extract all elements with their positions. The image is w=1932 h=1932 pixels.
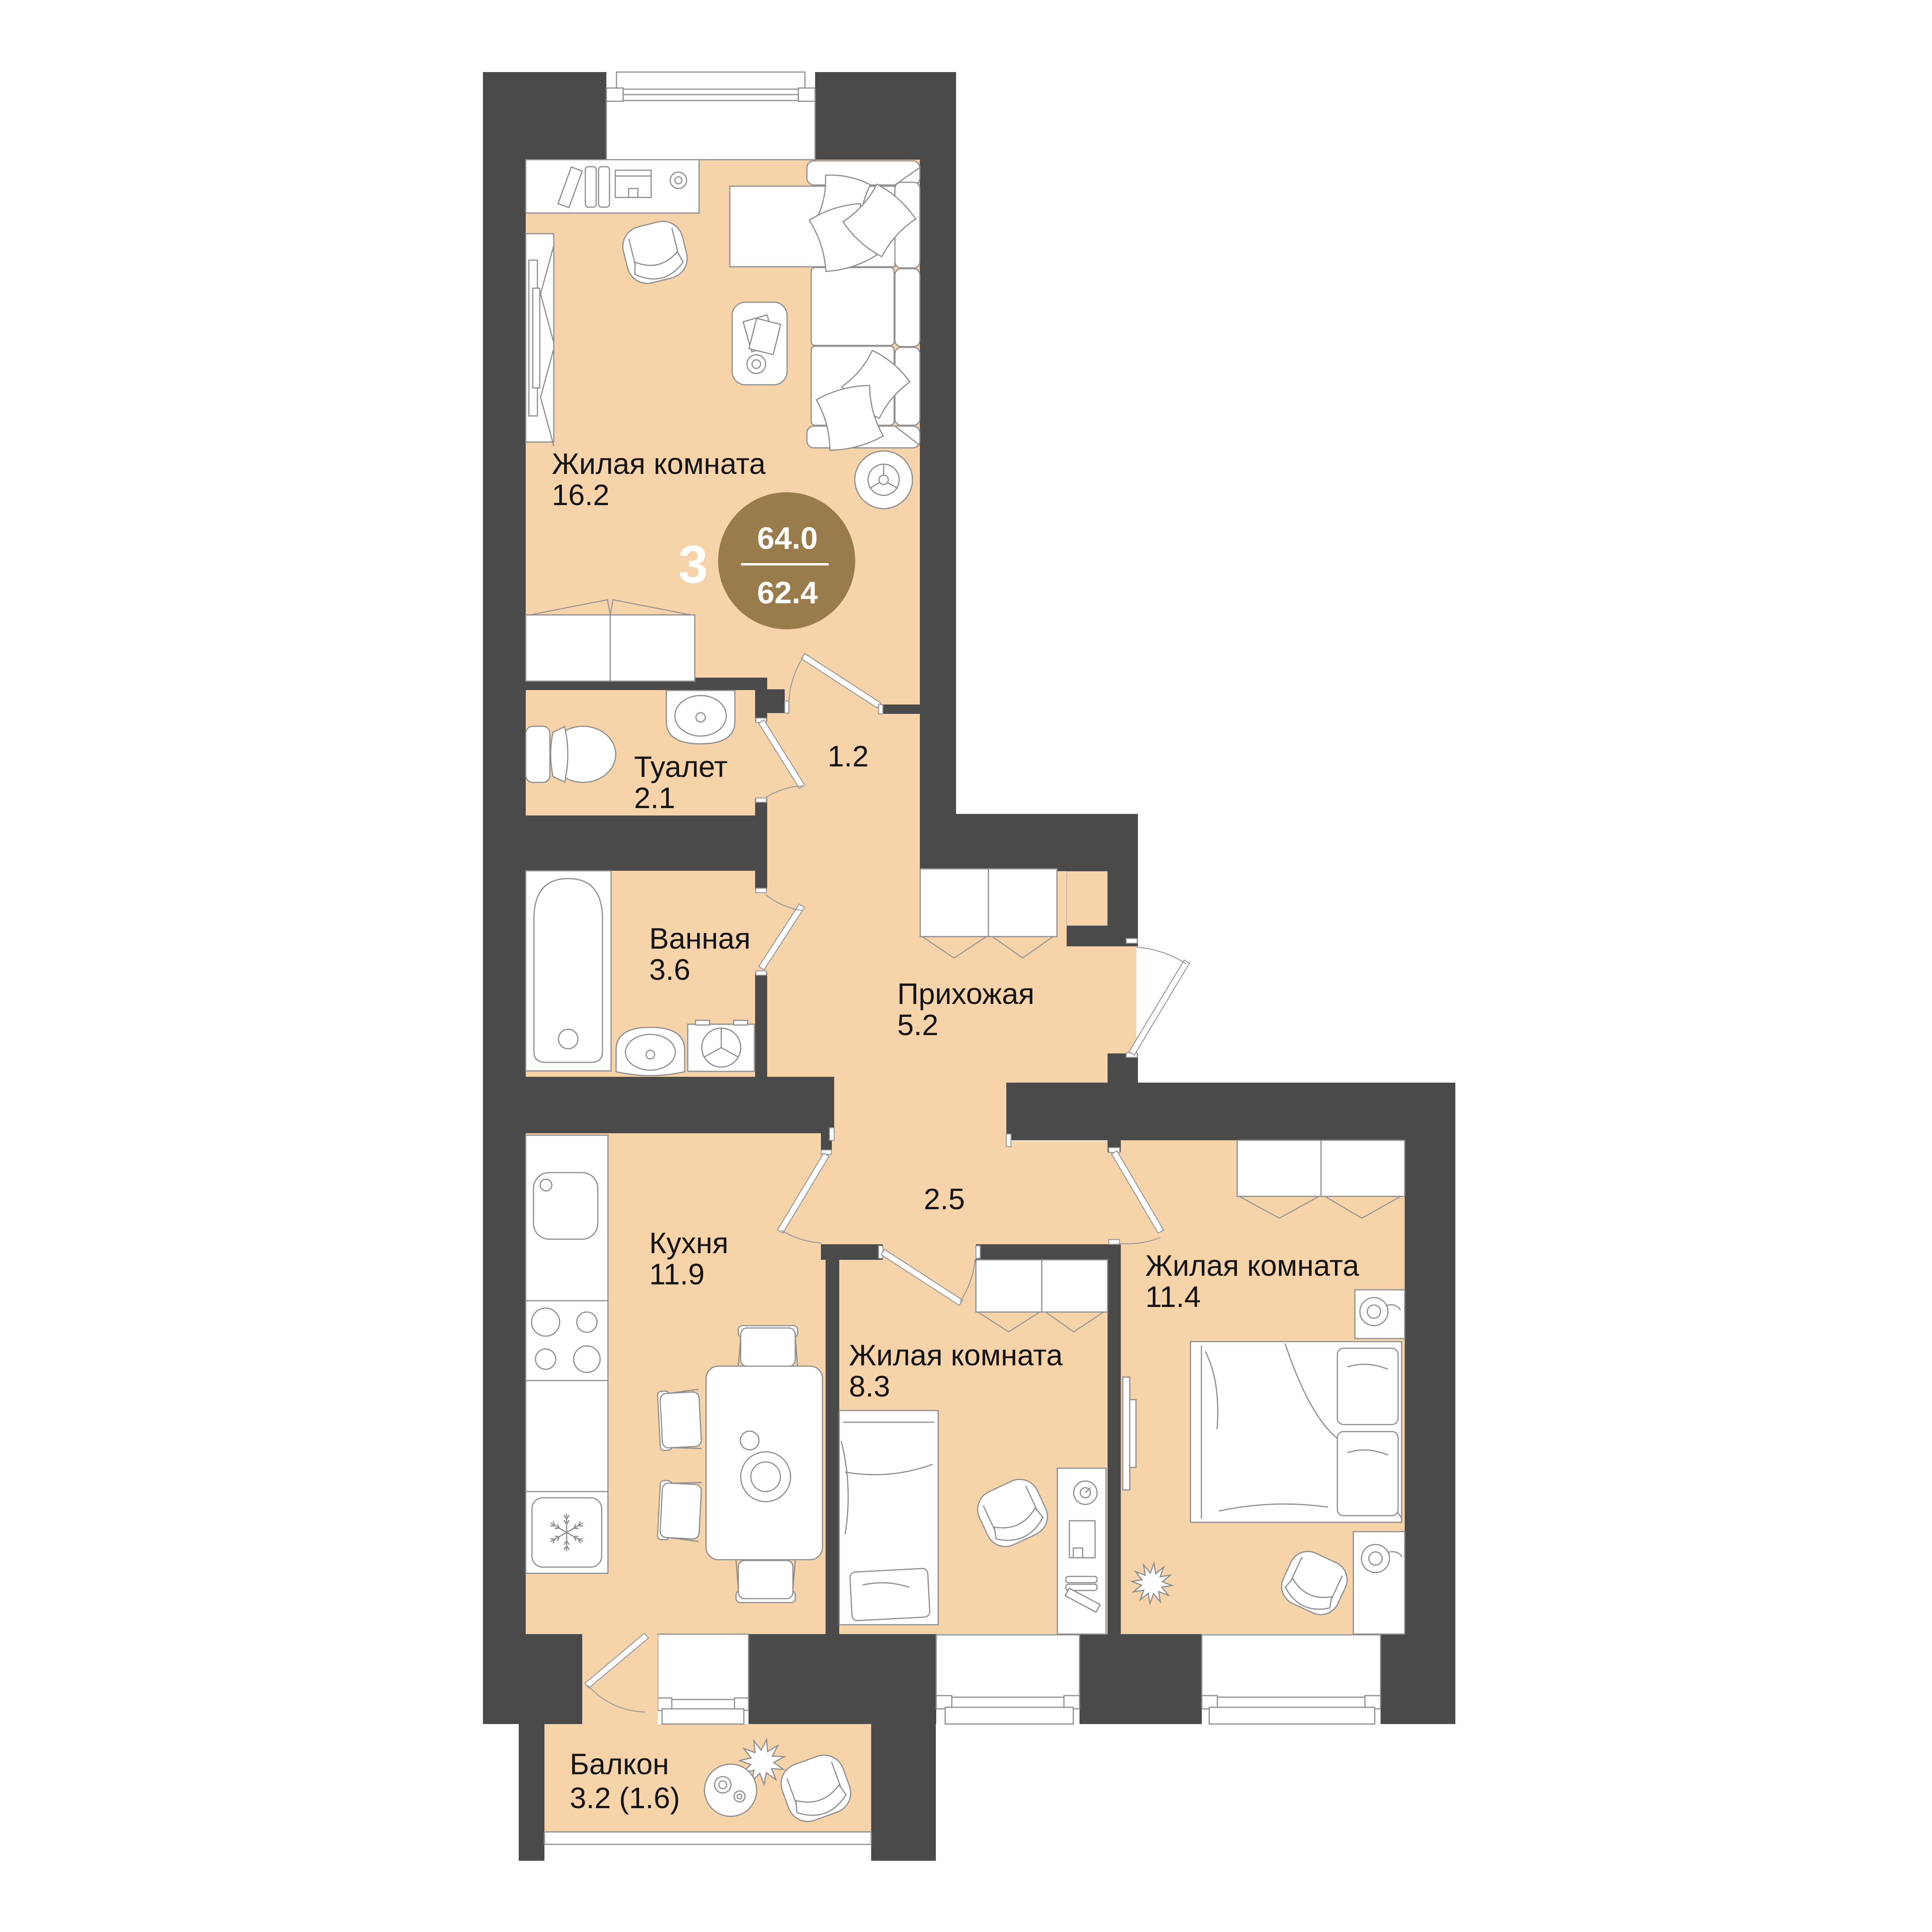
svg-text:1.2: 1.2 (828, 740, 869, 773)
svg-text:2.1: 2.1 (634, 782, 675, 815)
svg-text:Кухня: Кухня (649, 1227, 728, 1260)
svg-text:2.5: 2.5 (924, 1183, 965, 1216)
svg-text:Жилая комната: Жилая комната (1145, 1249, 1360, 1282)
svg-text:Туалет: Туалет (634, 750, 727, 784)
svg-text:3.6: 3.6 (649, 953, 690, 986)
svg-text:8.3: 8.3 (849, 1370, 890, 1403)
svg-text:62.4: 62.4 (757, 575, 818, 610)
svg-text:3: 3 (678, 535, 708, 594)
svg-text:64.0: 64.0 (757, 521, 818, 555)
svg-text:11.9: 11.9 (649, 1258, 704, 1291)
svg-text:Балкон: Балкон (570, 1748, 669, 1781)
svg-text:Ванная: Ванная (649, 922, 750, 955)
svg-text:11.4: 11.4 (1145, 1280, 1201, 1314)
svg-text:Прихожая: Прихожая (897, 977, 1034, 1011)
svg-text:Жилая комната: Жилая комната (552, 447, 766, 481)
svg-text:Жилая комната: Жилая комната (849, 1339, 1063, 1372)
svg-text:5.2: 5.2 (897, 1009, 939, 1042)
svg-text:16.2: 16.2 (552, 479, 609, 512)
svg-text:3.2 (1.6): 3.2 (1.6) (570, 1782, 680, 1815)
